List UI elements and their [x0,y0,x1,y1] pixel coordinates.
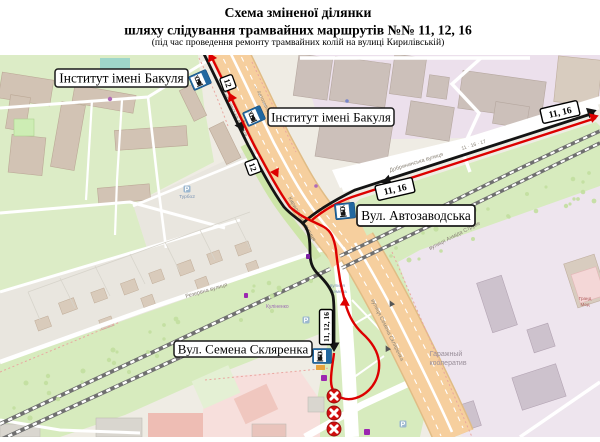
svg-text:Куліненко: Куліненко [266,304,289,310]
svg-text:Турбо2: Турбо2 [179,194,195,200]
svg-text:вулиця: вулиця [330,283,345,288]
svg-text:Вул. Семена Скляренка: Вул. Семена Скляренка [178,342,309,357]
svg-text:11, 12, 16: 11, 12, 16 [322,312,331,342]
svg-text:Гранд: Гранд [579,296,592,301]
svg-text:Мед: Мед [580,302,589,307]
svg-text:кооператив: кооператив [429,360,466,367]
svg-text:(під час проведення ремонту тр: (під час проведення ремонту трамвайних к… [152,37,445,48]
svg-text:Інститут імені Бакуля: Інститут імені Бакуля [59,71,183,86]
svg-text:шляху слідування трамвайних ма: шляху слідування трамвайних маршрутів №№… [124,23,472,38]
svg-text:Гаражный: Гаражный [430,350,463,358]
svg-text:Вул. Автозаводська: Вул. Автозаводська [361,208,471,223]
svg-text:Інститут імені Бакуля: Інститут імені Бакуля [271,110,391,125]
svg-text:Схема зміненої ділянки: Схема зміненої ділянки [225,5,372,20]
